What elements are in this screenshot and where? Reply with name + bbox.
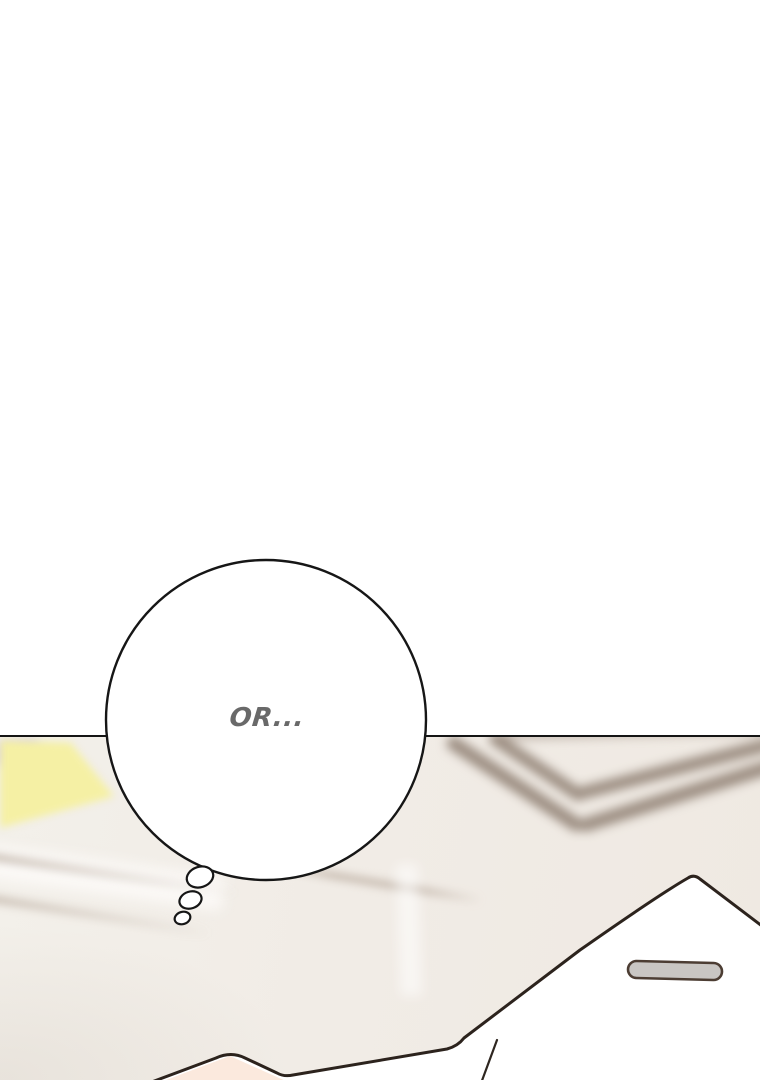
thought-trail-bubble-2 [177, 889, 204, 912]
thought-text: OR... [188, 701, 346, 735]
pen-slot [628, 961, 722, 980]
thought-trail-bubble-3 [173, 910, 192, 927]
comic-page: OR... [0, 0, 760, 1080]
line-art-layer [0, 0, 760, 1080]
